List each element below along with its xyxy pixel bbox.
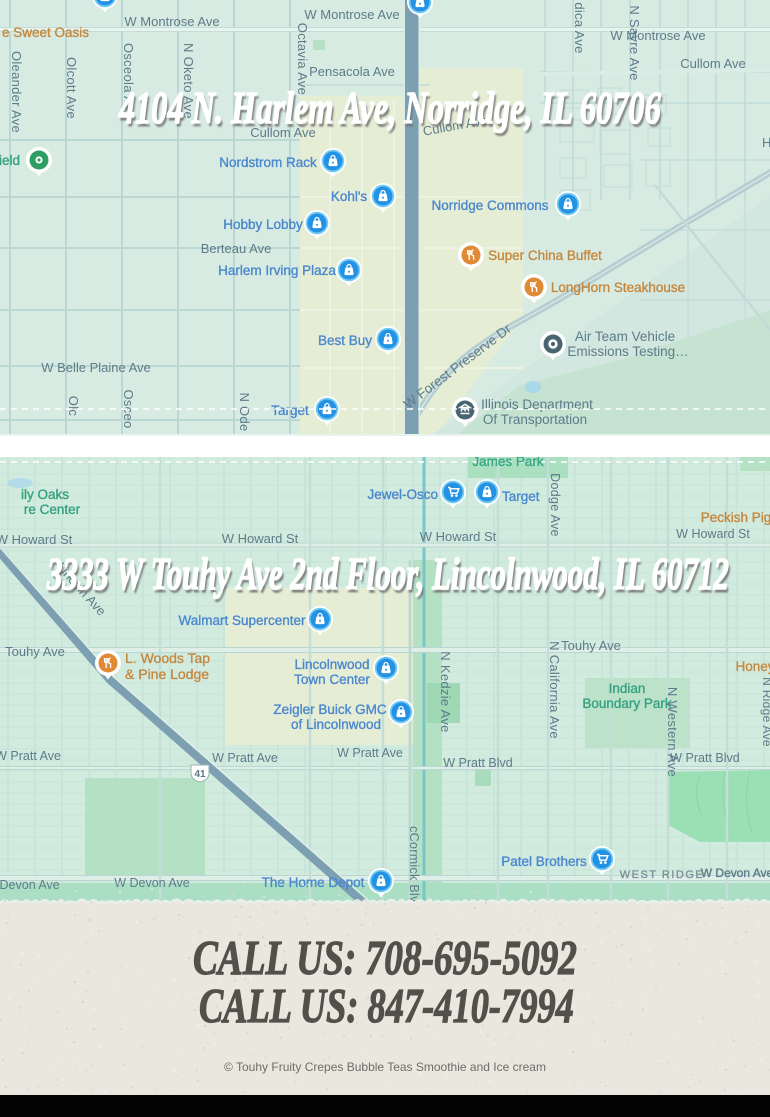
svg-text:N Sayre Ave: N Sayre Ave	[627, 5, 642, 80]
svg-text:Indian: Indian	[609, 681, 646, 696]
svg-text:Harlem Irving Plaza: Harlem Irving Plaza	[218, 263, 336, 278]
svg-text:Walmart Supercenter: Walmart Supercenter	[178, 613, 306, 628]
svg-text:Zeigler Buick GMC: Zeigler Buick GMC	[273, 702, 387, 717]
svg-text:Honey: Honey	[735, 659, 770, 674]
svg-text:Hig: Hig	[762, 135, 770, 150]
svg-text:Boundary Park: Boundary Park	[582, 696, 672, 711]
svg-text:Lincolnwood: Lincolnwood	[294, 657, 369, 672]
svg-text:field: field	[0, 153, 20, 168]
svg-text:W Howard St: W Howard St	[420, 529, 497, 544]
svg-text:N Ridge Ave: N Ridge Ave	[760, 677, 770, 747]
svg-text:Dodge Ave: Dodge Ave	[548, 473, 562, 537]
svg-text:W Pratt Ave: W Pratt Ave	[337, 746, 403, 760]
svg-text:dica Ave: dica Ave	[572, 2, 587, 53]
svg-text:Pensacola Ave: Pensacola Ave	[309, 64, 395, 79]
svg-text:Peckish Pig: Peckish Pig	[701, 510, 770, 525]
svg-text:W Belle Plaine Ave: W Belle Plaine Ave	[41, 360, 151, 375]
svg-text:Target: Target	[271, 403, 309, 418]
svg-text:Norridge Commons: Norridge Commons	[431, 198, 548, 213]
svg-text:Kohl's: Kohl's	[331, 189, 368, 204]
svg-text:Of Transportation: Of Transportation	[483, 412, 587, 427]
svg-text:N California Ave: N California Ave	[547, 641, 562, 739]
svg-text:Air Team Vehicle: Air Team Vehicle	[575, 329, 675, 344]
svg-text:W Montrose Ave: W Montrose Ave	[610, 28, 705, 43]
svg-text:Super China Buffet: Super China Buffet	[488, 248, 602, 263]
svg-text:W Devon Ave: W Devon Ave	[701, 866, 770, 880]
svg-text:Emissions Testing…: Emissions Testing…	[567, 344, 688, 359]
svg-text:of Lincolnwood: of Lincolnwood	[291, 717, 381, 732]
svg-text:Nordstrom Rack: Nordstrom Rack	[219, 155, 317, 170]
svg-text:W Montrose Ave: W Montrose Ave	[124, 14, 219, 29]
svg-text:W Howard St: W Howard St	[0, 532, 73, 547]
svg-text:LongHorn Steakhouse: LongHorn Steakhouse	[551, 280, 685, 295]
svg-text:N Kedzie Ave: N Kedzie Ave	[438, 651, 453, 732]
svg-text:Berteau Ave: Berteau Ave	[201, 241, 272, 256]
svg-text:Olc: Olc	[66, 396, 81, 417]
svg-text:W Howard St: W Howard St	[676, 527, 750, 541]
svg-text:Town Center: Town Center	[294, 672, 370, 687]
svg-text:Jewel-Osco: Jewel-Osco	[367, 487, 438, 502]
svg-text:W Pratt Ave: W Pratt Ave	[0, 749, 61, 763]
svg-text:Touhy Ave: Touhy Ave	[5, 644, 65, 659]
svg-text:re Center: re Center	[24, 502, 81, 517]
svg-text:& Pine Lodge: & Pine Lodge	[125, 666, 209, 682]
svg-text:Best Buy: Best Buy	[318, 333, 372, 348]
svg-text:W Montrose Ave: W Montrose Ave	[304, 7, 399, 22]
svg-text:Olcott Ave: Olcott Ave	[64, 57, 79, 119]
svg-text:41: 41	[194, 769, 206, 780]
svg-text:Touhy Ave: Touhy Ave	[561, 638, 621, 653]
svg-text:N Ode: N Ode	[237, 392, 252, 431]
svg-text:W Pratt Blvd: W Pratt Blvd	[670, 751, 740, 765]
svg-text:L. Woods Tap: L. Woods Tap	[125, 650, 210, 666]
svg-text:W Howard St: W Howard St	[222, 531, 299, 546]
svg-text:Oleander Ave: Oleander Ave	[9, 51, 24, 133]
svg-text:Cullom Ave: Cullom Ave	[680, 56, 746, 71]
svg-text:W Pratt Ave: W Pratt Ave	[212, 751, 278, 765]
svg-text:James Park: James Park	[472, 457, 544, 469]
svg-text:Hobby Lobby: Hobby Lobby	[223, 217, 303, 232]
svg-text:WEST RIDGE: WEST RIDGE	[620, 869, 704, 881]
svg-text:ily Oaks: ily Oaks	[21, 487, 69, 502]
svg-text:e Sweet Oasis: e Sweet Oasis	[2, 25, 89, 40]
svg-text:Target: Target	[502, 489, 540, 504]
svg-text:Patel Brothers: Patel Brothers	[501, 854, 587, 869]
svg-text:W Pratt Blvd: W Pratt Blvd	[443, 756, 513, 770]
